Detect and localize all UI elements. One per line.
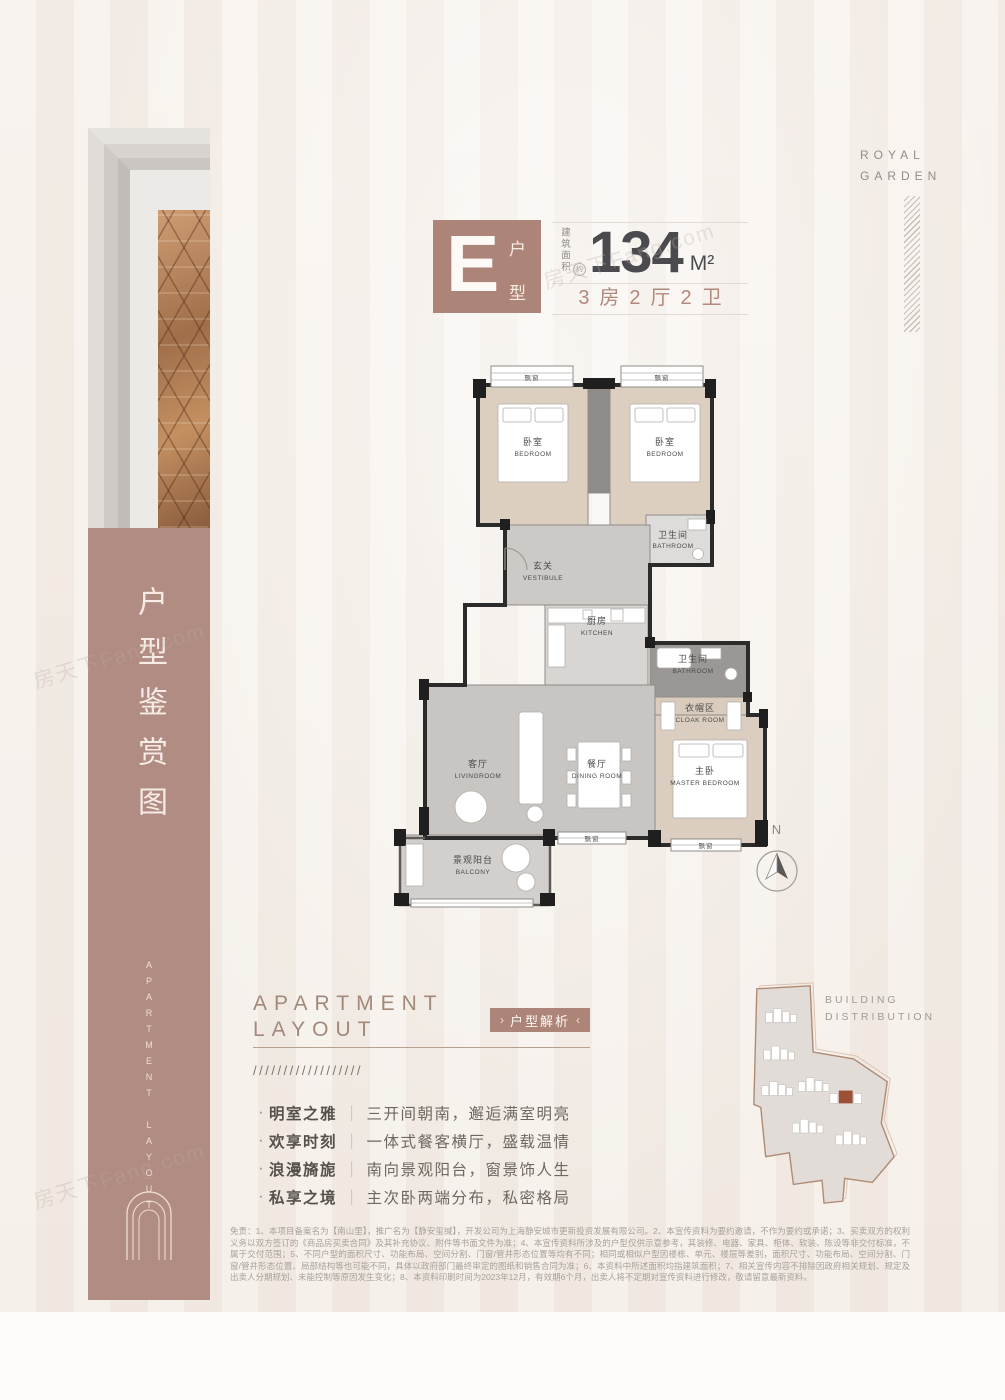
list-item: · 私享之境 ｜ 主次卧两端分布，私密格局 xyxy=(253,1183,613,1211)
room-label-living-en: LIVINGROOM xyxy=(455,773,502,780)
bay-window-label-3: 飘窗 xyxy=(585,834,600,843)
feature-title: 欢享时刻 xyxy=(269,1130,337,1152)
list-item: · 明室之雅 ｜ 三开间朝南，邂逅满室明亮 xyxy=(253,1099,613,1127)
feature-list: · 明室之雅 ｜ 三开间朝南，邂逅满室明亮 · 欢享时刻 ｜ 一体式餐客横厅，盛… xyxy=(253,1099,613,1211)
unit-type-char-1: 户 xyxy=(509,235,526,260)
bottom-margin xyxy=(0,1312,1005,1400)
feature-desc: 一体式餐客横厅，盛载温情 xyxy=(367,1130,571,1152)
unit-type-char-2: 型 xyxy=(509,279,526,304)
feature-desc: 三开间朝南，邂逅满室明亮 xyxy=(367,1102,571,1124)
compass: N xyxy=(742,822,812,912)
room-label-bedroom-right-en: BEDROOM xyxy=(646,451,683,458)
bay-window-label-1: 飘窗 xyxy=(525,373,540,382)
area-unit: M² xyxy=(690,252,715,276)
feature-desc: 主次卧两端分布，私密格局 xyxy=(367,1186,571,1208)
room-label-bathroom-master-en: BATHROOM xyxy=(672,668,713,675)
building-label-line2: DISTRIBUTION xyxy=(825,1009,935,1026)
room-label-bathroom-top-en: BATHROOM xyxy=(652,543,693,550)
room-label-balcony-en: BALCONY xyxy=(456,869,491,876)
room-label-bedroom-left-cn: 卧室 xyxy=(523,436,543,447)
feature-separator: ｜ xyxy=(344,1102,360,1124)
arch-icon xyxy=(117,1172,181,1262)
poster-page: 户型鉴赏图 APARTMENT LAYOUT ROYAL GARDEN E 户 … xyxy=(0,0,1005,1400)
list-item: · 欢享时刻 ｜ 一体式餐客横厅，盛载温情 xyxy=(253,1127,613,1155)
feature-desc: 南向景观阳台，窗景饰人生 xyxy=(367,1158,571,1180)
sidebar-title-cn: 户型鉴赏图 xyxy=(127,586,171,836)
area-value: 134 xyxy=(589,224,683,282)
section-rule xyxy=(253,1047,590,1048)
feature-title: 明室之雅 xyxy=(269,1102,337,1124)
chevron-right-icon: › xyxy=(500,1013,504,1027)
feature-separator: ｜ xyxy=(344,1158,360,1180)
unit-room-spec: 3房2厅2卫 xyxy=(552,284,748,314)
apartment-layout-section: APARTMENT LAYOUT › 户型解析 ‹ //////////////… xyxy=(253,991,613,1211)
feature-separator: ｜ xyxy=(344,1186,360,1208)
room-label-kitchen-cn: 厨房 xyxy=(587,615,607,626)
room-label-vestibule-cn: 玄关 xyxy=(533,560,553,571)
room-label-cloak-en: CLOAK ROOM xyxy=(675,717,724,724)
room-label-living-cn: 客厅 xyxy=(468,758,488,769)
room-label-bedroom-left-en: BEDROOM xyxy=(514,451,551,458)
disclaimer-text: 免责：1、本项目备案名为【南山里】，推广名为【静安玺缄】，开发公司为上海静安城市… xyxy=(230,1226,910,1284)
bay-window-label-2: 飘窗 xyxy=(655,373,670,382)
room-label-vestibule-en: VESTIBULE xyxy=(523,575,563,582)
chevron-left-icon: ‹ xyxy=(576,1013,580,1027)
unit-type-chars: 户 型 xyxy=(509,235,526,304)
unit-spec-box: 建筑面积 约 134 M² 3房2厅2卫 xyxy=(552,222,748,315)
bullet-dot: · xyxy=(253,1132,269,1150)
hatch-decoration xyxy=(904,196,920,332)
bullet-dot: · xyxy=(253,1188,269,1206)
room-label-bathroom-top-cn: 卫生间 xyxy=(658,529,688,540)
bullet-dot: · xyxy=(253,1104,269,1122)
bay-window-label-4: 飘窗 xyxy=(699,841,714,850)
unit-type-box: E 户 型 xyxy=(433,220,541,313)
feature-separator: ｜ xyxy=(344,1130,360,1152)
brand-line1: ROYAL xyxy=(860,145,941,166)
slash-decoration: ////////////////// xyxy=(253,1063,613,1078)
compass-icon xyxy=(742,837,812,903)
sidebar: 户型鉴赏图 APARTMENT LAYOUT xyxy=(88,528,210,1300)
feature-title: 浪漫旖旎 xyxy=(269,1158,337,1180)
copper-panel xyxy=(158,210,210,528)
brand-line2: GARDEN xyxy=(860,166,941,187)
decor-photo-molding xyxy=(88,128,210,528)
building-label-line1: BUILDING xyxy=(825,992,935,1009)
room-label-cloak-cn: 衣帽区 xyxy=(685,702,715,713)
feature-title: 私享之境 xyxy=(269,1186,337,1208)
list-item: · 浪漫旖旎 ｜ 南向景观阳台，窗景饰人生 xyxy=(253,1155,613,1183)
section-tag-label: 户型解析 xyxy=(510,1011,570,1030)
room-label-bedroom-right-cn: 卧室 xyxy=(655,436,675,447)
area-approx-badge: 约 xyxy=(573,263,586,276)
room-label-master-cn: 主卧 xyxy=(695,765,715,776)
floor-plan: 卧室 BEDROOM 卧室 BEDROOM 卫生间 BATHROOM 玄关 VE… xyxy=(383,352,778,922)
room-label-bathroom-master-cn: 卫生间 xyxy=(678,653,708,664)
room-label-kitchen-en: KITCHEN xyxy=(581,630,613,637)
unit-type-letter: E xyxy=(446,214,499,314)
compass-north-label: N xyxy=(742,822,812,837)
bullet-dot: · xyxy=(253,1160,269,1178)
room-label-dining-cn: 餐厅 xyxy=(587,758,607,769)
room-label-dining-en: DINING ROOM xyxy=(572,773,622,780)
brand-logo: ROYAL GARDEN xyxy=(860,145,941,187)
area-label: 建筑面积 xyxy=(557,227,571,279)
room-label-master-en: MASTER BEDROOM xyxy=(670,780,739,787)
section-tag: › 户型解析 ‹ xyxy=(490,1008,590,1032)
building-distribution-label: BUILDING DISTRIBUTION xyxy=(825,992,935,1026)
room-label-balcony-cn: 景观阳台 xyxy=(453,854,493,865)
unit-area-row: 建筑面积 约 134 M² xyxy=(552,223,748,284)
